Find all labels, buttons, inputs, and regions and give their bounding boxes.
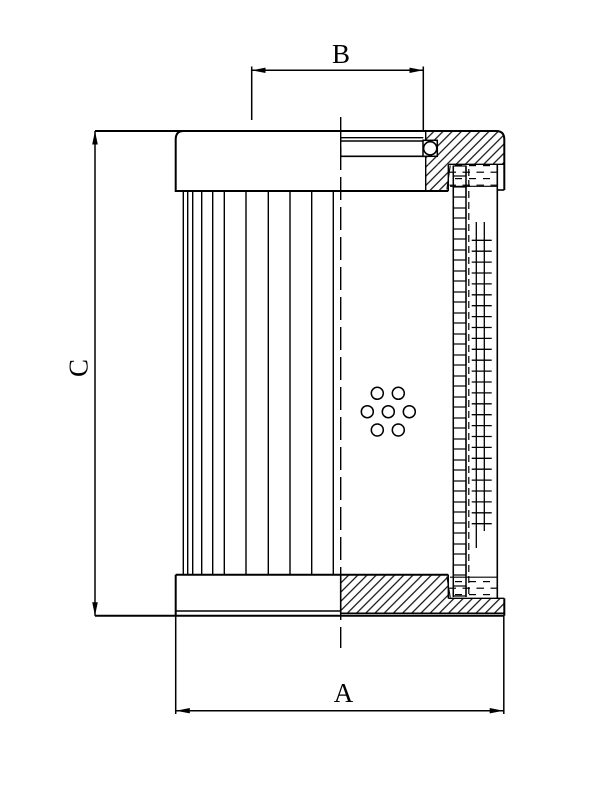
bottom-potting-adhesive (450, 577, 498, 598)
bottom-cap-hatch-step (448, 598, 504, 613)
technical-drawing-page: B C A (0, 0, 612, 792)
o-ring-seal (424, 142, 437, 155)
top-cap-hatch-lower (426, 164, 449, 191)
filter-element-drawing: B C A (0, 0, 612, 792)
drawing-background (0, 0, 612, 792)
dimension-a-label: A (334, 678, 354, 708)
bottom-cap-hatch-main (341, 575, 449, 614)
dimension-b-label: B (332, 39, 350, 69)
dimension-c-label: C (63, 359, 93, 377)
